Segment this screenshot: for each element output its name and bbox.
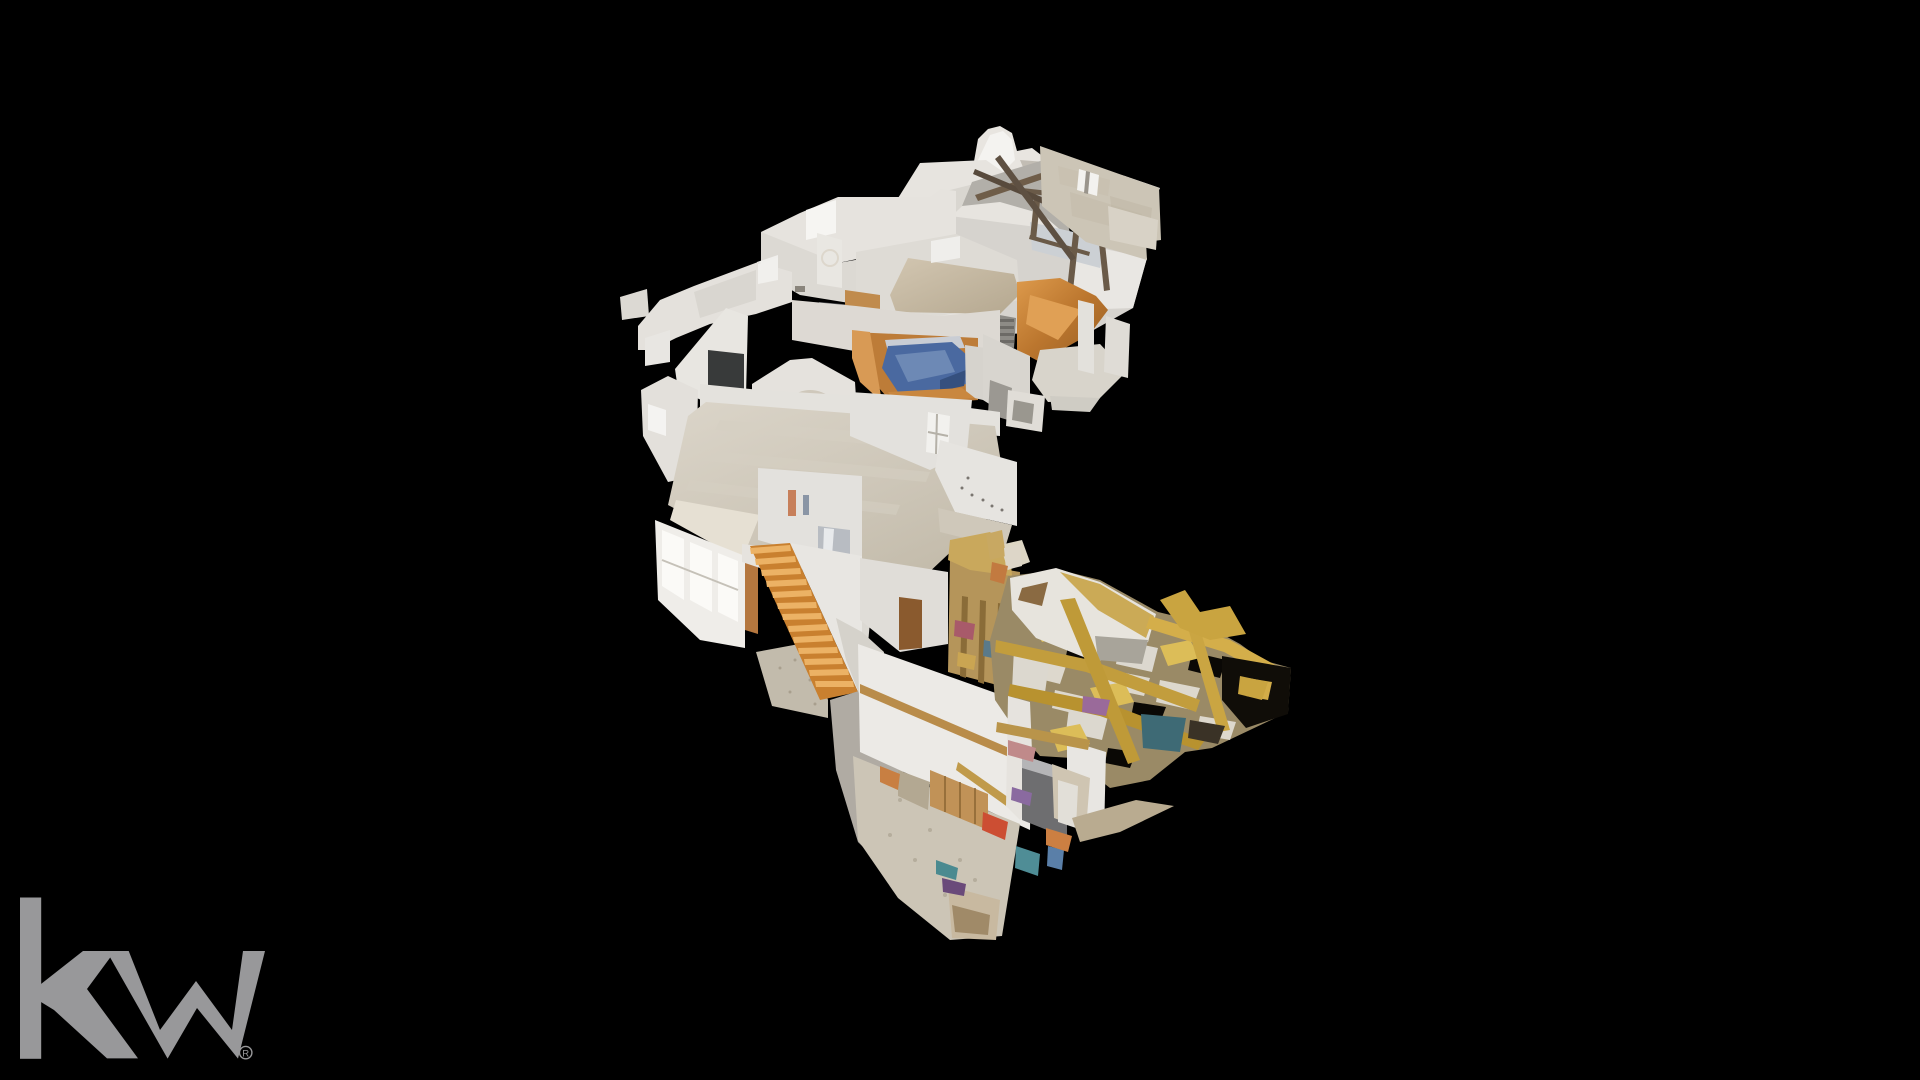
svg-text:R: R (242, 1048, 249, 1059)
